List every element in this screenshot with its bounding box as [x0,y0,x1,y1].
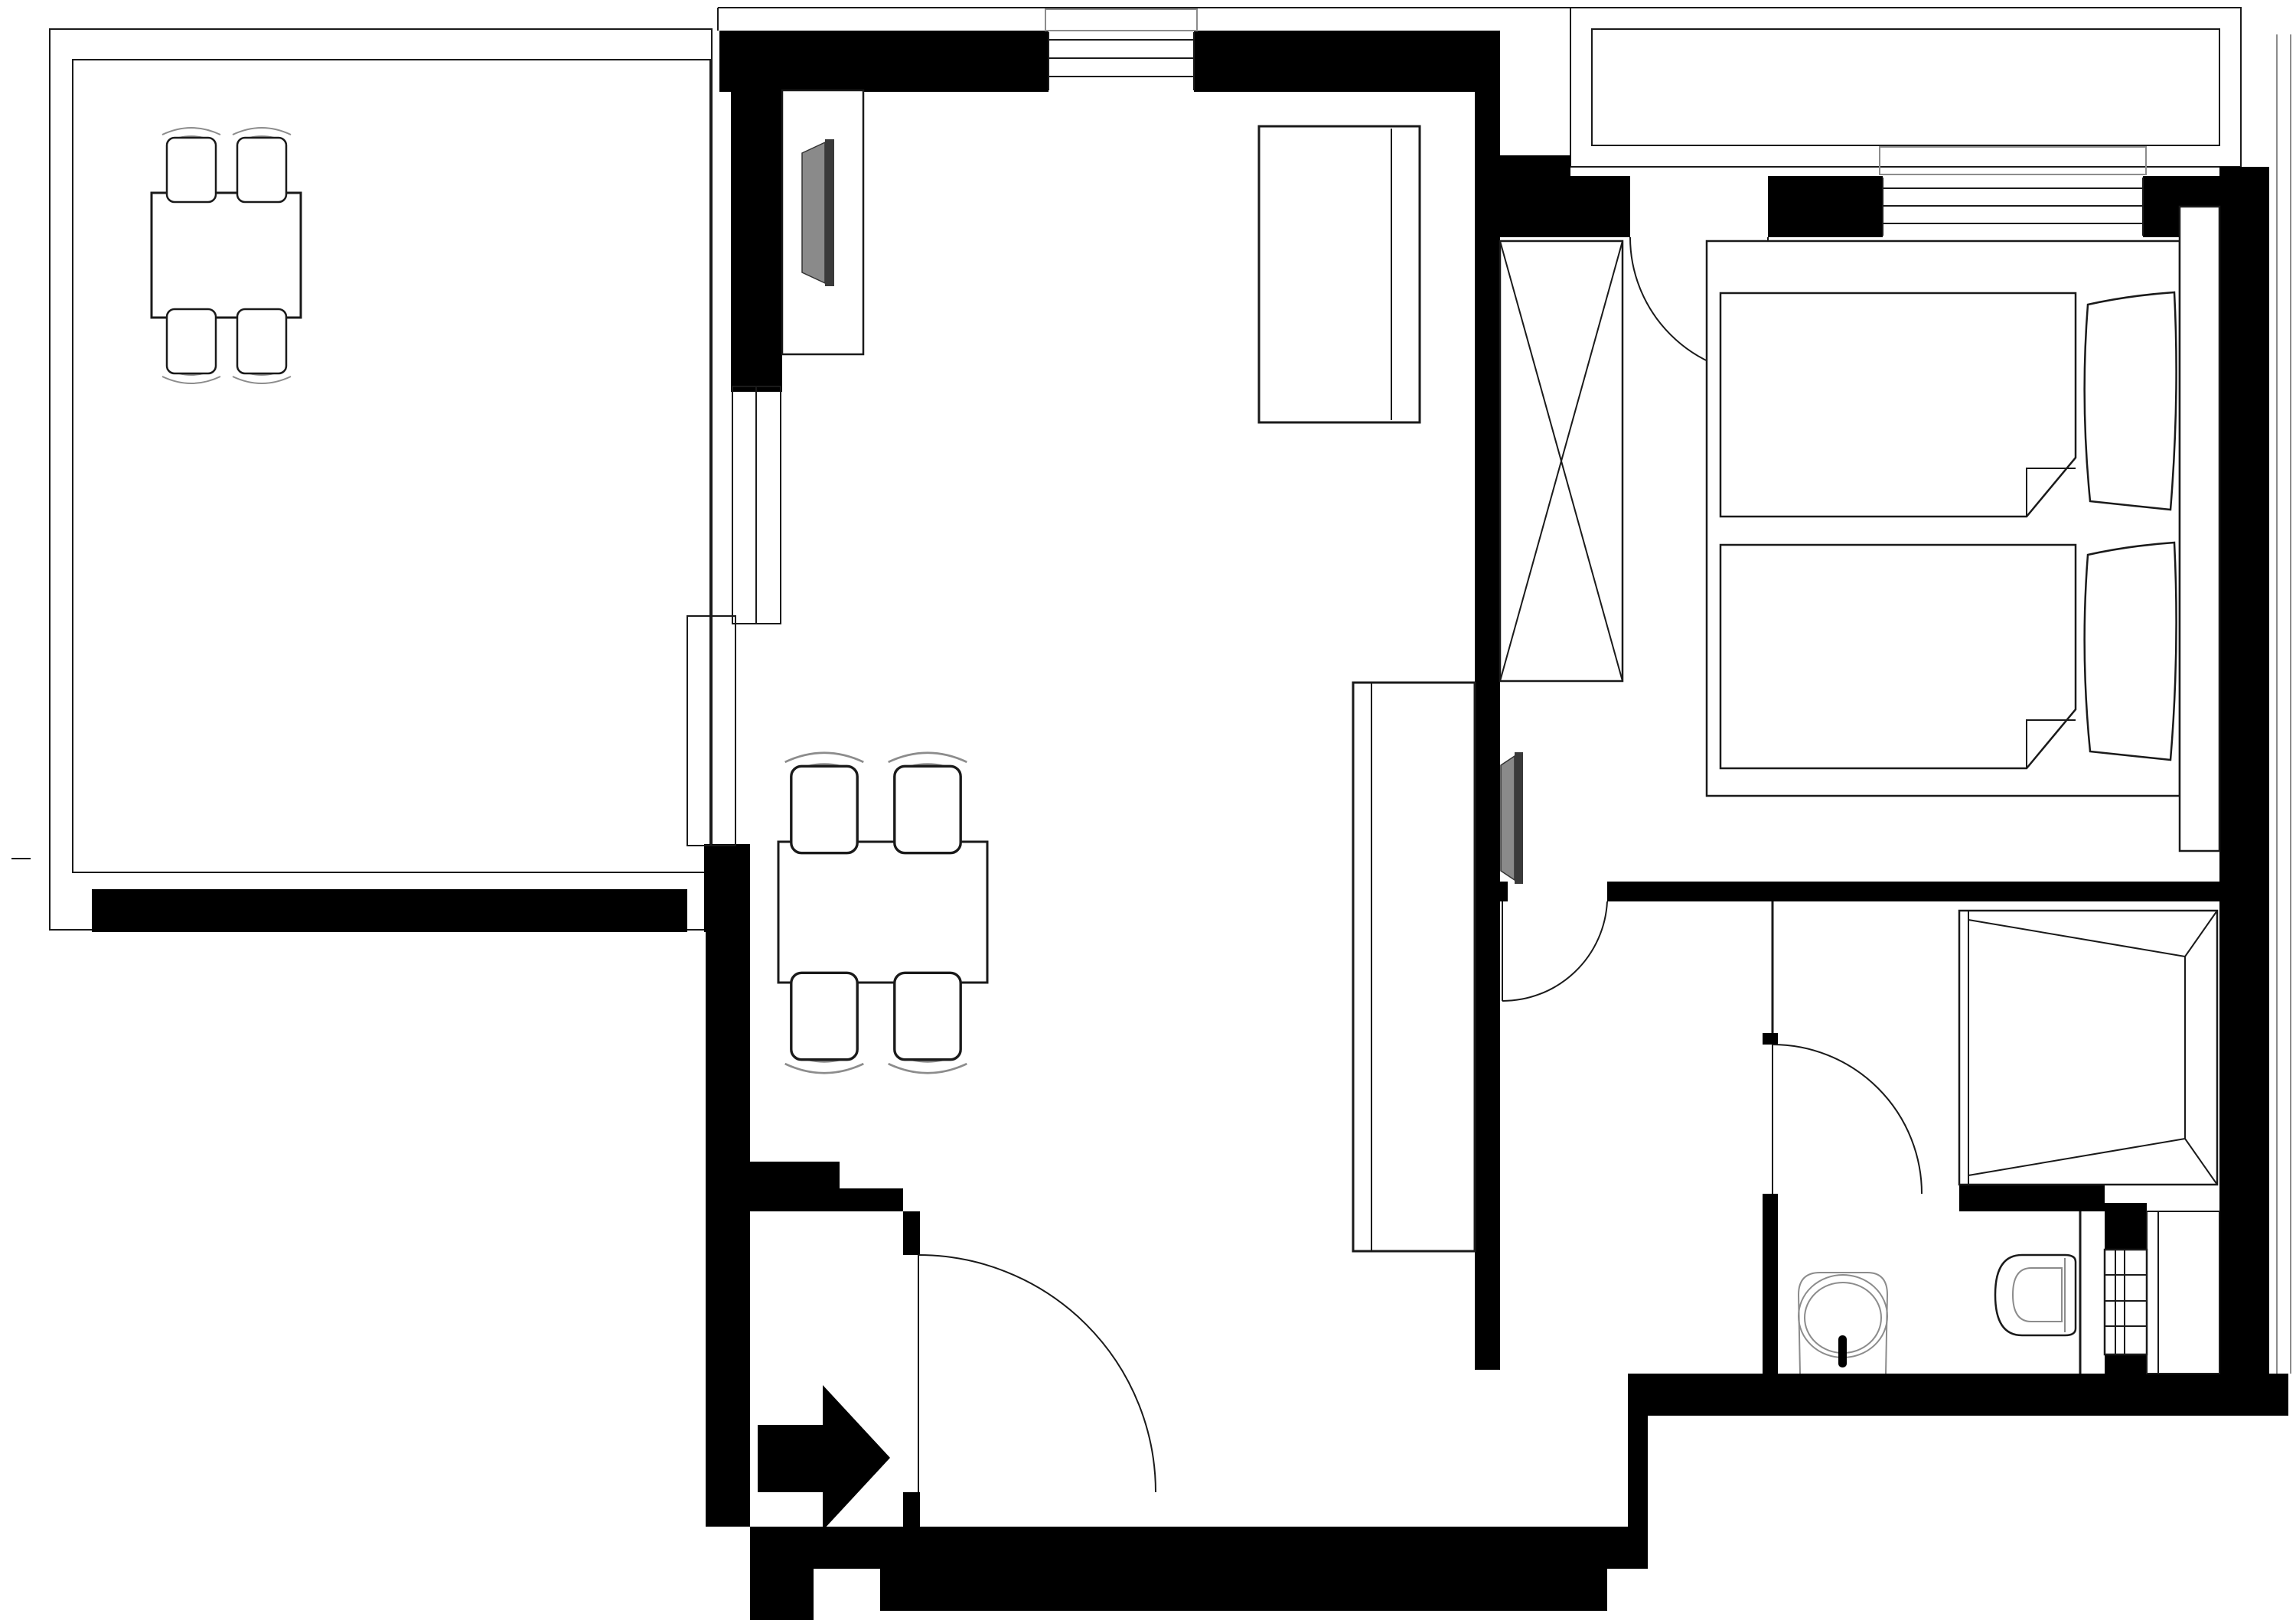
wall-shower-low [1959,1185,2105,1211]
floor-plan-drawing [0,0,2296,1620]
wall-vestibule-step [750,1162,840,1211]
sofa [1259,126,1420,422]
dining-chair [785,753,864,853]
wall-bedroom-south-stub [1500,882,1508,901]
washbasin [1799,1273,1887,1374]
wall-bedroom-south [1607,882,2219,901]
wall-corner-northeast [1475,155,1570,237]
outdoor-chair [233,309,291,383]
terrace-sliding-door [687,386,781,846]
ventilation-shaft [2105,1250,2147,1354]
wall-corridor-south [750,1527,1648,1569]
wall-bathroom-south [1628,1374,2288,1416]
wall-bedroom-north-a [1570,176,1630,237]
entrance-door [918,1255,1156,1492]
outdoor-dining-table [152,193,301,318]
terrace-outline-outer [50,29,712,930]
wall-west-upper [731,31,782,392]
tv-hallway-wall [1501,756,1515,880]
wall-bedroom-north-b [1768,176,1883,237]
entrance-arrow [758,1385,890,1530]
balcony-outline-inner [1592,29,2219,145]
bathroom-door-jamb-top [1763,1033,1778,1045]
balcony-outline-outer [1570,8,2241,167]
mattress-upper [1720,293,2076,517]
shaft-block-top [2105,1203,2147,1250]
bathroom-door-swing-arc [1773,1045,1922,1194]
wall-vestibule-thin [840,1188,903,1211]
dining-chair [785,973,864,1073]
headboard [2180,207,2219,851]
wall-west-lower [706,932,750,1527]
pillow-lower [2085,543,2177,760]
wall-corridor-left-leg [750,1569,814,1620]
living-room-window-sill [1045,9,1197,31]
tv-living-room-screen [825,139,834,286]
entrance-door-swing-arc [918,1255,1156,1492]
bedroom-window [1880,147,2146,236]
outdoor-chair [233,128,291,202]
wall-west-mid [704,844,750,932]
bedroom-window-sill [1880,147,2146,174]
entrance-door-jamb-top [903,1211,920,1255]
tv-hallway-screen [1515,752,1523,884]
tv-living-room [802,142,825,283]
bathroom-door [1773,1045,1922,1194]
wall-living-east [1475,88,1500,1370]
pillow-upper [2085,292,2177,510]
entrance-door-jamb-bottom [903,1492,920,1528]
shaft-block-bottom [2105,1354,2147,1374]
wall-top-right [1194,31,1500,92]
dining-table [778,842,987,983]
outdoor-chair [162,309,220,383]
bedroom-door [1502,901,1607,1001]
dining-chair [889,753,967,853]
wall-corridor-south-offset [880,1569,1607,1611]
dining-chair [889,973,967,1073]
wall-terrace-south [92,889,687,932]
faucet [1838,1335,1847,1367]
wall-bathroom-west [1763,1194,1778,1374]
toilet [1995,1255,2076,1335]
living-room-window [1045,9,1197,90]
mattress-lower [1720,545,2076,768]
outdoor-chair [162,128,220,202]
wall-east [2219,167,2269,1416]
shower-tray [1959,911,2217,1185]
floor-plan [0,0,2296,1620]
bedroom-door-swing-arc [1502,901,1607,1001]
wall-bathroom-west-leg [1628,1374,1648,1528]
